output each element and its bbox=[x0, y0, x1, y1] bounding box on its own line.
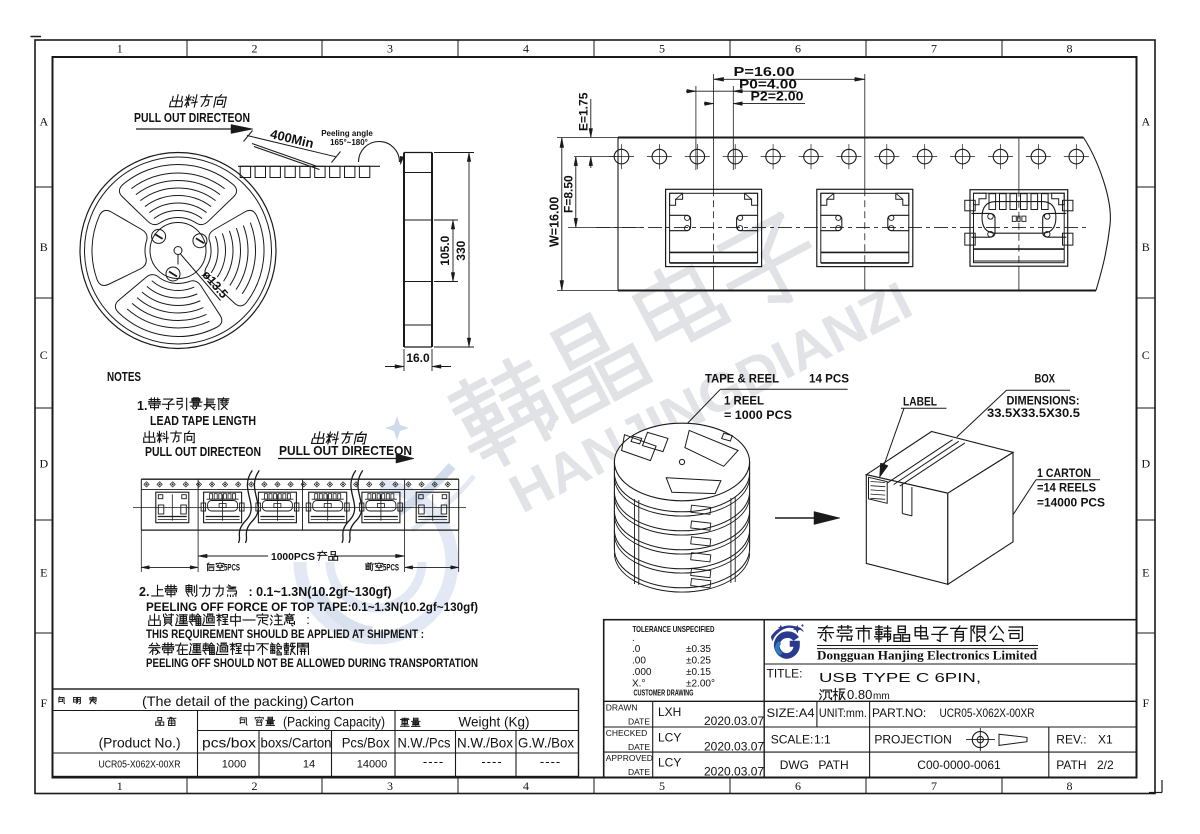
svg-text:6: 6 bbox=[795, 779, 801, 793]
svg-text:1000PCS: 1000PCS bbox=[271, 551, 315, 563]
svg-text:LCY: LCY bbox=[658, 756, 681, 770]
svg-text:pcs/box: pcs/box bbox=[202, 735, 256, 751]
svg-text:4: 4 bbox=[523, 42, 529, 56]
svg-text:PULL OUT DIRECTEON: PULL OUT DIRECTEON bbox=[145, 445, 261, 459]
svg-text:8: 8 bbox=[1067, 42, 1073, 56]
svg-text:C: C bbox=[1142, 348, 1150, 362]
svg-text:P2=2.00: P2=2.00 bbox=[751, 90, 804, 104]
svg-text:F=8.50: F=8.50 bbox=[562, 175, 576, 213]
svg-text:TAPE & REEL: TAPE & REEL bbox=[705, 372, 779, 386]
svg-text:E: E bbox=[1142, 566, 1149, 580]
svg-text:N.W./Box: N.W./Box bbox=[457, 735, 513, 751]
svg-text:C: C bbox=[40, 348, 48, 362]
svg-text:SCALE:: SCALE: bbox=[771, 733, 814, 747]
svg-text:REV.:: REV.: bbox=[1056, 733, 1086, 747]
svg-text:E=1.75: E=1.75 bbox=[577, 92, 591, 131]
svg-text:BOX: BOX bbox=[1035, 372, 1056, 386]
svg-text:PULL OUT DIRECTEON: PULL OUT DIRECTEON bbox=[279, 444, 412, 458]
svg-text:DATE: DATE bbox=[628, 742, 650, 752]
svg-text:----: ---- bbox=[423, 754, 444, 769]
svg-text:----: ---- bbox=[481, 754, 502, 769]
svg-text:W=16.00: W=16.00 bbox=[548, 197, 562, 247]
svg-text:: 0.1~1.3N(10.2gf~130gf): : 0.1~1.3N(10.2gf~130gf) bbox=[249, 585, 392, 599]
svg-text:APPROVED: APPROVED bbox=[606, 753, 653, 763]
svg-text:Peeling angle: Peeling angle bbox=[321, 129, 373, 138]
svg-text:DRAWN: DRAWN bbox=[606, 703, 638, 713]
svg-text:C00-0000-0061: C00-0000-0061 bbox=[917, 758, 1001, 772]
svg-text:2020.03.07: 2020.03.07 bbox=[704, 764, 764, 778]
svg-text:PULL OUT DIRECTEON: PULL OUT DIRECTEON bbox=[134, 111, 250, 125]
svg-text:UNIT:mm.: UNIT:mm. bbox=[819, 708, 867, 720]
svg-text:1 CARTON: 1 CARTON bbox=[1037, 466, 1091, 480]
svg-text:Carton: Carton bbox=[310, 693, 354, 709]
svg-text:G.W./Box: G.W./Box bbox=[518, 735, 574, 751]
svg-text:TITLE:: TITLE: bbox=[767, 667, 803, 681]
svg-text:E: E bbox=[40, 566, 47, 580]
svg-text:5: 5 bbox=[659, 42, 665, 56]
svg-text:PATH: PATH bbox=[818, 758, 848, 772]
svg-text:B: B bbox=[1142, 240, 1150, 254]
svg-text:A: A bbox=[39, 115, 48, 129]
svg-text:PEELING OFF FORCE OF TOP TAPE:: PEELING OFF FORCE OF TOP TAPE:0.1~1.3N(1… bbox=[146, 600, 478, 614]
svg-text:14000: 14000 bbox=[357, 759, 388, 771]
svg-text:4: 4 bbox=[523, 779, 529, 793]
svg-text:=14000 PCS: =14000 PCS bbox=[1037, 495, 1105, 509]
svg-text:16.0: 16.0 bbox=[406, 351, 430, 365]
svg-text:330: 330 bbox=[454, 240, 468, 260]
svg-text:105.0: 105.0 bbox=[438, 235, 452, 265]
svg-text:X1: X1 bbox=[1098, 733, 1113, 747]
svg-text:UCR05-X062X-00XR: UCR05-X062X-00XR bbox=[99, 760, 181, 771]
svg-text:D: D bbox=[39, 457, 48, 471]
svg-text:B: B bbox=[40, 240, 48, 254]
svg-text:LCY: LCY bbox=[658, 731, 681, 745]
svg-text:CUSTOMER DRAWING: CUSTOMER DRAWING bbox=[634, 688, 694, 698]
svg-text:TOLERANCE UNSPECIFIED: TOLERANCE UNSPECIFIED bbox=[633, 624, 715, 634]
svg-text:A: A bbox=[1141, 115, 1150, 129]
svg-text:14: 14 bbox=[303, 759, 315, 771]
svg-text:LXH: LXH bbox=[658, 705, 681, 719]
svg-text:= 1000 PCS: = 1000 PCS bbox=[724, 408, 792, 422]
svg-text:PART.NO:: PART.NO: bbox=[872, 706, 926, 720]
svg-text:165°~180°: 165°~180° bbox=[330, 138, 368, 147]
svg-text:±0.25: ±0.25 bbox=[686, 656, 711, 667]
svg-text:1:1: 1:1 bbox=[814, 733, 831, 747]
svg-text:Dongguan Hanjing Electronics L: Dongguan Hanjing Electronics Limited bbox=[817, 649, 1037, 663]
svg-text:(Product No.): (Product No.) bbox=[99, 735, 181, 751]
svg-text:0.80: 0.80 bbox=[847, 687, 872, 702]
svg-text:----: ---- bbox=[540, 754, 561, 769]
svg-text:(Packing Capacity): (Packing Capacity) bbox=[283, 713, 385, 729]
svg-text:2/2: 2/2 bbox=[1097, 758, 1114, 772]
svg-text:UCR05-X062X-00XR: UCR05-X062X-00XR bbox=[940, 706, 1035, 720]
svg-text:7: 7 bbox=[931, 779, 937, 793]
svg-text:F: F bbox=[40, 696, 47, 710]
svg-text:3: 3 bbox=[387, 42, 393, 56]
svg-text:DATE: DATE bbox=[628, 717, 650, 727]
svg-text:PEELING OFF SHOULD NOT BE ALLO: PEELING OFF SHOULD NOT BE ALLOWED DURING… bbox=[146, 656, 478, 670]
svg-text:N.W./Pcs: N.W./Pcs bbox=[398, 735, 451, 751]
svg-text:5PCS: 5PCS bbox=[224, 563, 240, 574]
svg-text:2: 2 bbox=[252, 42, 258, 56]
svg-text:33.5X33.5X30.5: 33.5X33.5X30.5 bbox=[987, 406, 1080, 420]
svg-text:.000: .000 bbox=[632, 667, 652, 678]
svg-text:D: D bbox=[1141, 457, 1150, 471]
svg-text:PROJECTION: PROJECTION bbox=[874, 733, 951, 747]
svg-text:F: F bbox=[1142, 696, 1149, 710]
svg-text:2.: 2. bbox=[139, 585, 149, 599]
svg-text:5: 5 bbox=[659, 779, 665, 793]
svg-text:CHECKED: CHECKED bbox=[606, 728, 648, 738]
svg-text:(The detail of the packing): (The detail of the packing) bbox=[142, 693, 308, 709]
svg-text:DWG: DWG bbox=[780, 758, 809, 772]
svg-text:NOTES: NOTES bbox=[107, 369, 141, 384]
svg-text:3: 3 bbox=[387, 779, 393, 793]
svg-text:boxs/Carton: boxs/Carton bbox=[261, 735, 332, 751]
svg-text:2: 2 bbox=[252, 779, 258, 793]
svg-text:7: 7 bbox=[931, 42, 937, 56]
svg-text:1: 1 bbox=[117, 779, 123, 793]
svg-text:LEAD TAPE LENGTH: LEAD TAPE LENGTH bbox=[150, 414, 256, 428]
svg-text:THIS REQUIREMENT SHOULD BE APP: THIS REQUIREMENT SHOULD BE APPLIED AT SH… bbox=[146, 627, 424, 641]
svg-text:6: 6 bbox=[795, 42, 801, 56]
svg-text:Weight (Kg): Weight (Kg) bbox=[459, 713, 530, 729]
svg-text:14 PCS: 14 PCS bbox=[809, 372, 849, 386]
svg-text::: : bbox=[306, 612, 310, 627]
svg-text:.00: .00 bbox=[632, 656, 646, 667]
svg-text:Pcs/Box: Pcs/Box bbox=[342, 735, 390, 751]
svg-text:PATH: PATH bbox=[1056, 758, 1086, 772]
svg-text:LABEL: LABEL bbox=[903, 395, 937, 409]
svg-text:2020.03.07: 2020.03.07 bbox=[704, 739, 764, 753]
svg-text:=14 REELS: =14 REELS bbox=[1037, 481, 1096, 495]
svg-text:1000: 1000 bbox=[222, 759, 246, 771]
svg-text:±0.15: ±0.15 bbox=[686, 667, 711, 678]
svg-text:±0.35: ±0.35 bbox=[686, 644, 711, 655]
svg-text:1 REEL: 1 REEL bbox=[724, 394, 764, 408]
svg-text:SIZE:A4: SIZE:A4 bbox=[767, 708, 816, 720]
svg-text:DATE: DATE bbox=[628, 767, 650, 777]
svg-text:5PCS: 5PCS bbox=[383, 563, 399, 574]
svg-text:mm: mm bbox=[873, 691, 890, 702]
svg-text:1: 1 bbox=[117, 42, 123, 56]
svg-text:.: . bbox=[632, 633, 635, 644]
svg-text:.0: .0 bbox=[632, 644, 641, 655]
svg-text:8: 8 bbox=[1067, 779, 1073, 793]
svg-text:USB TYPE C 6PIN,: USB TYPE C 6PIN, bbox=[819, 670, 981, 685]
svg-text:2020.03.07: 2020.03.07 bbox=[704, 714, 764, 728]
svg-text:1.: 1. bbox=[137, 399, 147, 413]
